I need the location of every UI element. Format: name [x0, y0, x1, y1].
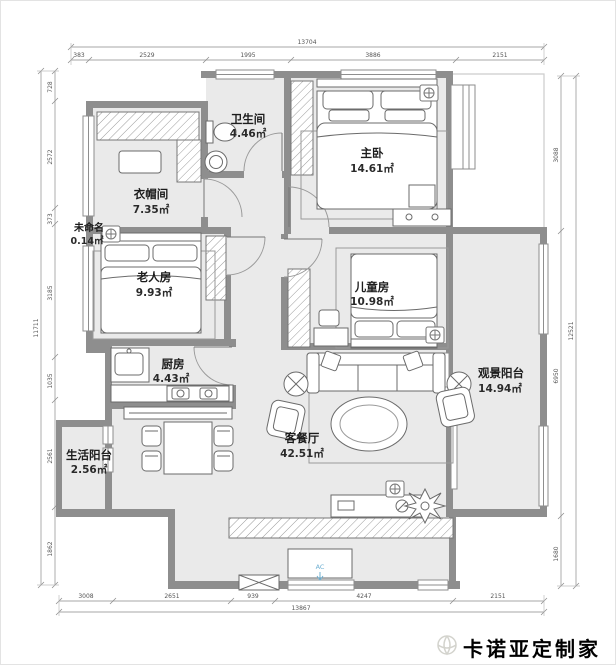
brand-logo-icon — [438, 636, 456, 654]
svg-text:7.35㎡: 7.35㎡ — [133, 203, 170, 216]
svg-text:观景阳台: 观景阳台 — [478, 366, 524, 380]
master-dresser — [393, 209, 451, 226]
cloakroom-island — [119, 151, 161, 173]
ac-label: AC — [316, 563, 325, 571]
floorplan-canvas: AC 卫生间4.46㎡ 衣帽间7.35㎡ 主卧14.61㎡ 未命名0.14㎡ 老… — [0, 0, 616, 665]
tv-wall-cabinet — [229, 518, 453, 538]
svg-text:主卧: 主卧 — [361, 146, 384, 160]
ac-fan-icon — [102, 226, 120, 242]
ac-fan-icon — [386, 481, 404, 497]
svg-text:3185: 3185 — [47, 285, 54, 300]
svg-text:939: 939 — [247, 593, 259, 600]
sideboard — [124, 407, 232, 419]
svg-text:2529: 2529 — [139, 52, 154, 59]
svg-text:383: 383 — [73, 52, 85, 59]
svg-text:儿童房: 儿童房 — [354, 280, 390, 294]
elder-bed — [93, 233, 215, 339]
svg-text:13867: 13867 — [291, 605, 310, 612]
bathroom-sink — [205, 151, 227, 173]
svg-text:卫生间: 卫生间 — [231, 112, 266, 126]
svg-text:6950: 6950 — [553, 368, 560, 383]
svg-text:14.94㎡: 14.94㎡ — [478, 382, 522, 395]
svg-text:1995: 1995 — [240, 52, 255, 59]
svg-text:4.46㎡: 4.46㎡ — [230, 127, 267, 140]
side-plant-left — [284, 372, 308, 396]
dim-left — [37, 68, 59, 588]
window-bottom — [288, 580, 354, 590]
svg-text:3088: 3088 — [553, 147, 560, 162]
svg-text:12521: 12521 — [568, 321, 575, 340]
window-master-top — [341, 70, 436, 79]
svg-text:1035: 1035 — [47, 373, 54, 388]
svg-text:2151: 2151 — [492, 52, 507, 59]
ac-fan-icon — [426, 327, 444, 343]
svg-text:1862: 1862 — [47, 541, 54, 556]
wardrobe-cloakroom-top — [97, 112, 199, 140]
wardrobe-elder-right — [206, 236, 226, 300]
window-balcony-right-lower — [539, 426, 548, 506]
svg-text:42.51㎡: 42.51㎡ — [280, 447, 324, 460]
kitchen-stove — [167, 386, 229, 401]
brand-watermark — [438, 636, 456, 654]
svg-text:14.61㎡: 14.61㎡ — [350, 162, 394, 175]
dining-chair — [142, 426, 161, 446]
svg-text:3008: 3008 — [78, 593, 93, 600]
window-bathroom-top — [216, 70, 274, 79]
svg-text:2151: 2151 — [490, 593, 505, 600]
svg-text:2572: 2572 — [47, 149, 54, 164]
svg-text:0.14㎡: 0.14㎡ — [71, 235, 104, 247]
armchair-right — [435, 386, 476, 428]
svg-text:厨房: 厨房 — [162, 357, 185, 371]
svg-text:生活阳台: 生活阳台 — [66, 448, 112, 462]
svg-text:373: 373 — [47, 213, 54, 225]
window-bottom-right — [418, 580, 448, 590]
window-cloakroom-left — [83, 116, 94, 216]
window-balcony-right-upper — [539, 244, 548, 334]
kitchen-sink — [111, 348, 149, 382]
svg-text:13704: 13704 — [297, 39, 316, 46]
coffee-table — [331, 397, 407, 451]
svg-text:衣帽间: 衣帽间 — [134, 187, 169, 201]
brand-name: 卡诺亚定制家居 — [463, 637, 601, 665]
entry-cabinet — [239, 575, 279, 590]
svg-text:3886: 3886 — [365, 52, 380, 59]
dining-chair — [142, 451, 161, 471]
svg-text:11711: 11711 — [33, 318, 40, 337]
dining-chair — [214, 451, 233, 471]
svg-text:2561: 2561 — [47, 448, 54, 463]
wardrobe-kids-left — [288, 269, 310, 347]
ac-fan-icon — [420, 85, 438, 101]
svg-text:728: 728 — [47, 81, 54, 93]
wardrobe-cloakroom-right — [177, 140, 201, 182]
dining-table — [164, 422, 212, 474]
floorplan-drawing: AC 卫生间4.46㎡ 衣帽间7.35㎡ 主卧14.61㎡ 未命名0.14㎡ 老… — [1, 1, 616, 665]
svg-text:9.93㎡: 9.93㎡ — [136, 286, 173, 299]
svg-text:10.98㎡: 10.98㎡ — [350, 295, 394, 308]
dining-chair — [214, 426, 233, 446]
svg-text:4.43㎡: 4.43㎡ — [153, 372, 190, 385]
brand-watermark-text: 卡诺亚定制家居 — [463, 633, 615, 665]
master-nightstand — [409, 185, 435, 207]
window-life-balcony-1 — [103, 426, 113, 444]
window-elder-left — [83, 246, 94, 331]
svg-text:2651: 2651 — [164, 593, 179, 600]
bay-window-master — [451, 85, 475, 169]
svg-text:客餐厅: 客餐厅 — [284, 431, 320, 445]
svg-text:老人房: 老人房 — [136, 270, 172, 284]
svg-text:未命名: 未命名 — [73, 221, 104, 234]
svg-text:2.56㎡: 2.56㎡ — [71, 463, 108, 476]
floor-plant — [405, 489, 445, 523]
svg-text:4247: 4247 — [356, 593, 371, 600]
svg-text:1680: 1680 — [553, 546, 560, 561]
wardrobe-master-left — [291, 81, 313, 175]
